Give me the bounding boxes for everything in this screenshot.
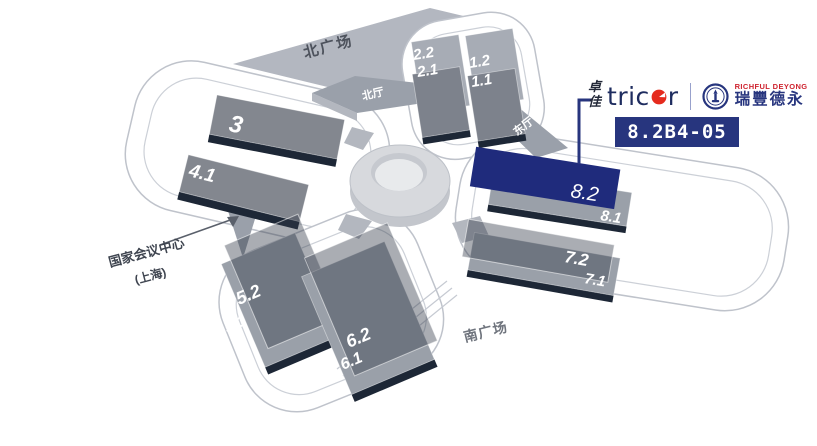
venue-map-canvas: 2.2 2.1 1.2 1.1 3 4.1 5.2 5.1 6.2 6.1 7.… — [0, 0, 817, 446]
logo-lockup: 卓 佳 tric r RICHFUL DEYONG 瑞豐德永 — [588, 76, 808, 116]
south-plaza-label: 南广场 — [462, 318, 510, 344]
booth-number-badge: 8.2B4-05 — [615, 117, 739, 147]
richful-deyong-chinese: 瑞豐德永 — [735, 91, 808, 109]
tricor-chinese-name: 卓 佳 — [588, 81, 601, 110]
tricor-red-o-icon — [651, 89, 667, 105]
tricor-chinese-char-top: 卓 — [588, 81, 601, 96]
logo-divider — [690, 83, 691, 110]
hall-label-8-2: 8.2 — [569, 180, 600, 206]
venue-map-page: 2.2 2.1 1.2 1.1 3 4.1 5.2 5.1 6.2 6.1 7.… — [0, 0, 817, 446]
central-ring — [350, 145, 450, 227]
convention-center-label-line2: (上海) — [133, 264, 168, 287]
tricor-wordmark-prefix: tric — [607, 82, 650, 111]
richful-deyong-emblem-icon — [702, 83, 729, 110]
hall-label-8-1: 8.1 — [599, 207, 622, 227]
tricor-chinese-char-bottom: 佳 — [588, 96, 601, 111]
hall-label-1-1: 1.1 — [470, 71, 493, 91]
tricor-wordmark-suffix: r — [668, 82, 679, 111]
hall-label-7-1: 7.1 — [583, 270, 606, 290]
convention-center-label-line1: 国家会议中心 — [107, 235, 186, 270]
hall-label-1-2: 1.2 — [468, 52, 492, 72]
richful-deyong-name: RICHFUL DEYONG 瑞豐德永 — [735, 83, 808, 109]
hall-label-2-1: 2.1 — [415, 61, 439, 81]
tricor-wordmark: tric r — [607, 82, 679, 111]
